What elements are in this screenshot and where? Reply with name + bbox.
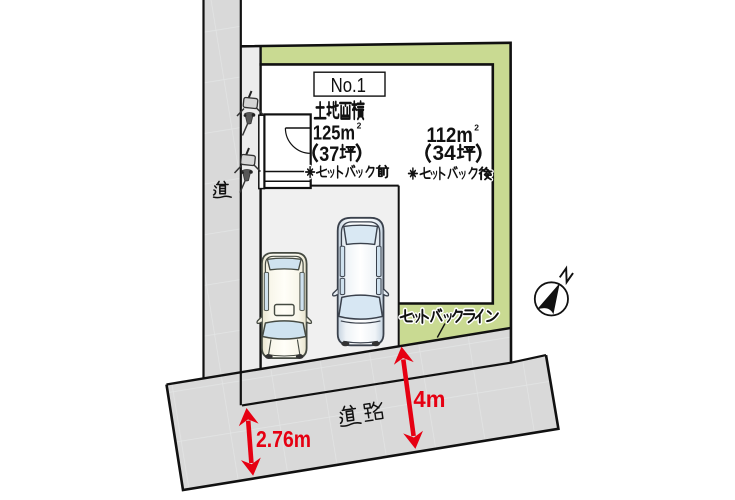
svg-text:4m: 4m bbox=[413, 386, 445, 412]
svg-text:37: 37 bbox=[319, 142, 339, 166]
svg-text:34: 34 bbox=[433, 141, 456, 165]
svg-text:2: 2 bbox=[474, 123, 479, 133]
svg-text:2: 2 bbox=[357, 121, 362, 131]
svg-text:No.1: No.1 bbox=[331, 75, 366, 97]
svg-text:2.76m: 2.76m bbox=[256, 426, 311, 452]
